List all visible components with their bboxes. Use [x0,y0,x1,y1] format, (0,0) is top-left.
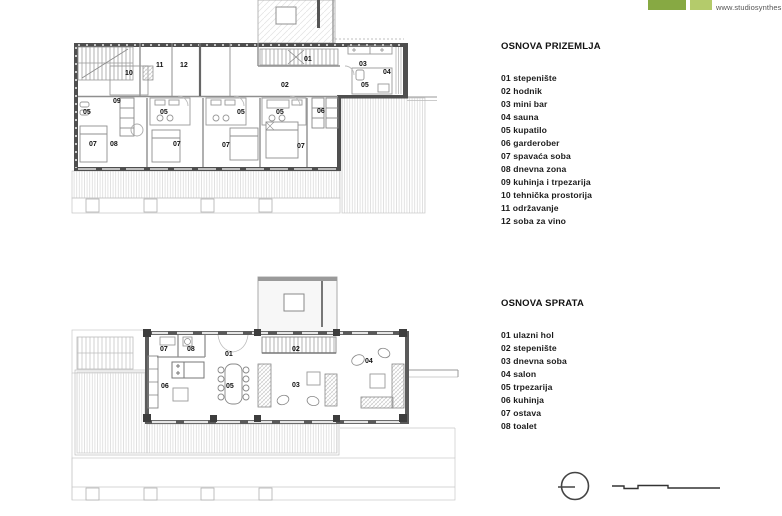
room-label: 08 [110,141,118,148]
sauna-wall-stripes [396,47,401,94]
legend-item: 08 dnevna zona [501,163,601,176]
legend-item: 01 stepenište [501,72,601,85]
legend-item: 01 ulazni hol [501,329,584,342]
room-label: 06 [161,383,169,390]
legend-upper-title: OSNOVA SPRATA [501,298,584,309]
room-label: 03 [292,382,300,389]
upper-site-squares [86,488,272,500]
room-label: 07 [222,142,230,149]
room-label: 02 [281,82,289,89]
room-label: 05 [83,109,91,116]
legend-item: 06 kuhinja [501,394,584,407]
room-label: 07 [160,346,168,353]
room-label: 04 [365,358,373,365]
room-label: 07 [297,143,305,150]
graphic-scale-bar-icon [612,486,720,489]
legend-item: 02 hodnik [501,85,601,98]
legend-ground-title: OSNOVA PRIZEMLJA [501,41,601,52]
legend-item: 07 spavaća soba [501,150,601,163]
room-label: 05 [237,109,245,116]
legend-item: 05 kupatilo [501,124,601,137]
room-label: 08 [187,346,195,353]
logo-dark-green-block [648,0,686,10]
legend-item: 07 ostava [501,407,584,420]
room-label: 10 [125,70,133,77]
drawing-symbols [545,458,755,510]
ground-floor-plan-drawing: 10111201020304050905050505060708070707 [40,0,470,240]
ground-stairs [78,47,338,95]
legend-item: 03 dnevna soba [501,355,584,368]
room-label: 03 [359,61,367,68]
legend-item: 10 tehnička prostorija [501,189,601,202]
north-indicator-circle-icon [558,473,589,500]
logo-light-green-block [690,0,712,10]
legend-item: 06 garderober [501,137,601,150]
legend-item: 11 održavanje [501,202,601,215]
garage-volume [258,0,404,43]
legend-item: 08 toalet [501,420,584,433]
entry-volume [258,277,337,333]
room-label: 04 [383,69,391,76]
studio-website-url: www.studiosynthesis.me [716,3,782,12]
upper-floor-plan-drawing: 0708010204060503 [40,260,470,510]
legend-item: 04 salon [501,368,584,381]
room-label: 07 [173,141,181,148]
room-label: 07 [89,141,97,148]
legend-item: 02 stepenište [501,342,584,355]
legend-item: 12 soba za vino [501,215,601,228]
architectural-sheet: { "branding": { "url": "www.studiosynthe… [0,0,782,516]
legend-item: 03 mini bar [501,98,601,111]
room-label: 05 [160,109,168,116]
room-label: 05 [361,82,369,89]
legend-item: 05 trpezarija [501,381,584,394]
legend-ground-items: 01 stepenište02 hodnik03 mini bar04 saun… [501,72,601,228]
room-label: 02 [292,346,300,353]
room-label: 05 [226,383,234,390]
room-label: 05 [276,109,284,116]
legend-upper-items: 01 ulazni hol02 stepenište03 dnevna soba… [501,329,584,433]
legend-item: 09 kuhinja i trpezarija [501,176,601,189]
legend-item: 04 sauna [501,111,601,124]
room-label: 06 [317,108,325,115]
site-planter-squares [86,199,272,212]
room-label: 01 [304,56,312,63]
legend-ground-floor: OSNOVA PRIZEMLJA 01 stepenište02 hodnik0… [501,41,601,228]
room-label: 09 [113,98,121,105]
legend-upper-floor: OSNOVA SPRATA 01 ulazni hol02 stepenište… [501,298,584,433]
room-label: 01 [225,351,233,358]
room-label: 12 [180,62,188,69]
room-label: 11 [156,62,164,69]
